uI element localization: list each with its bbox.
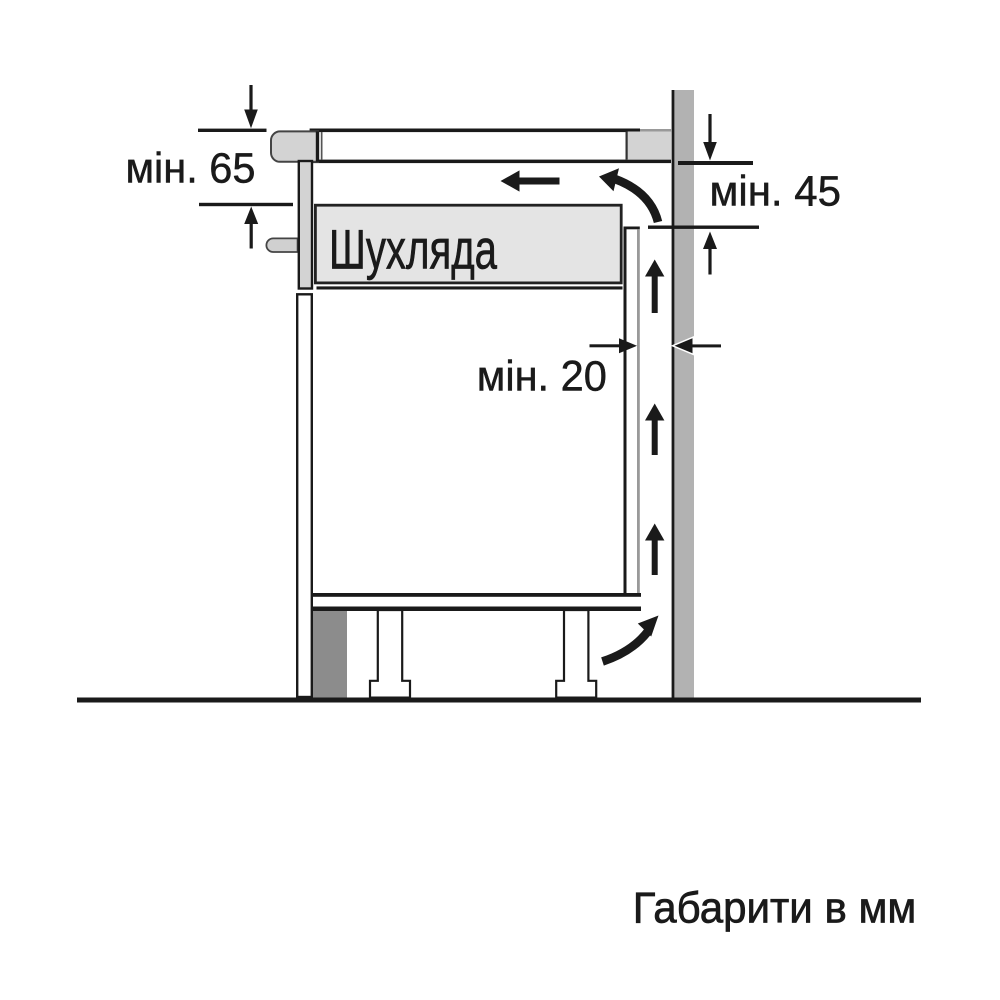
svg-text:мін. 20: мін. 20	[477, 353, 607, 401]
svg-text:Шухляда: Шухляда	[329, 218, 497, 280]
svg-text:Габарити в мм: Габарити в мм	[633, 884, 917, 933]
svg-text:мін. 65: мін. 65	[126, 146, 256, 193]
svg-text:мін. 45: мін. 45	[710, 169, 842, 216]
